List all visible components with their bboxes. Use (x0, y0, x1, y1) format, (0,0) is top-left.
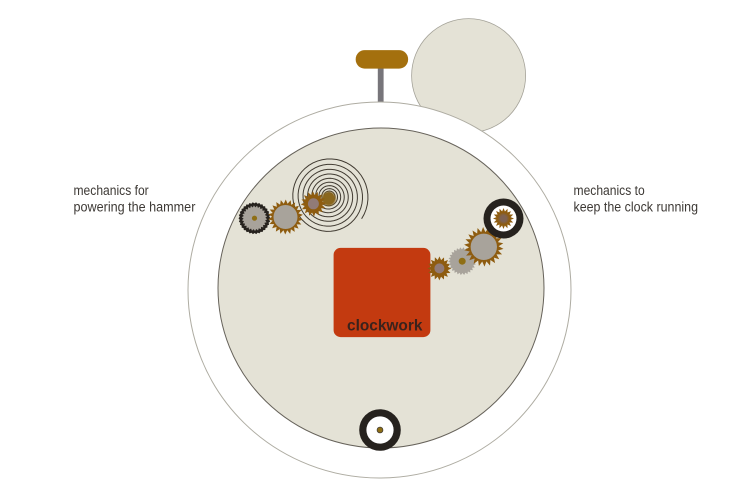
svg-text:clockwork: clockwork (347, 318, 422, 335)
svg-text:powering the hammer: powering the hammer (74, 200, 196, 215)
svg-text:mechanics to: mechanics to (574, 183, 645, 198)
svg-text:mechanics for: mechanics for (74, 183, 150, 198)
svg-text:keep the clock running: keep the clock running (574, 200, 699, 215)
